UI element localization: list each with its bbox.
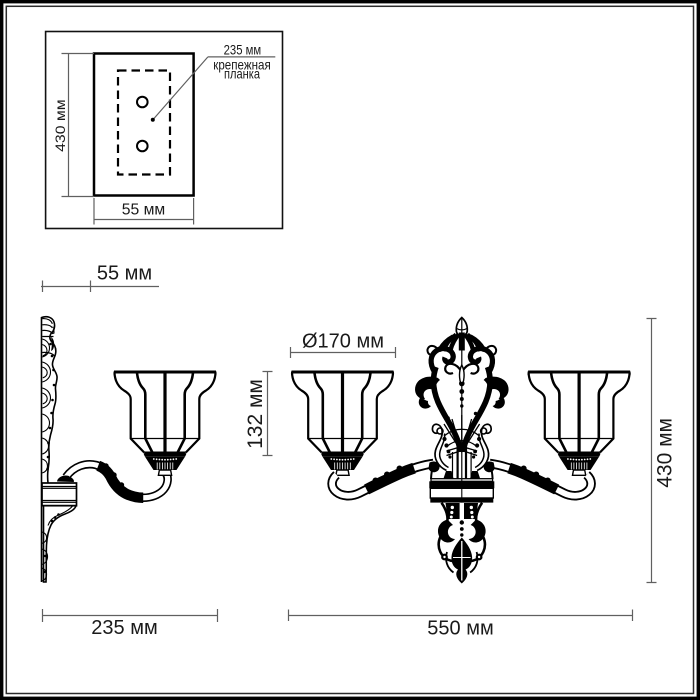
svg-text:550 мм: 550 мм [427, 618, 493, 640]
svg-text:132 мм: 132 мм [244, 379, 267, 449]
svg-text:235 мм: 235 мм [91, 617, 157, 639]
svg-text:планка: планка [224, 66, 260, 82]
svg-text:235 мм: 235 мм [224, 42, 262, 58]
svg-text:Ø170 мм: Ø170 мм [302, 331, 384, 353]
svg-text:55 мм: 55 мм [122, 202, 166, 219]
svg-text:430 мм: 430 мм [52, 99, 68, 152]
svg-text:430 мм: 430 мм [654, 418, 677, 488]
svg-text:55 мм: 55 мм [97, 263, 152, 285]
